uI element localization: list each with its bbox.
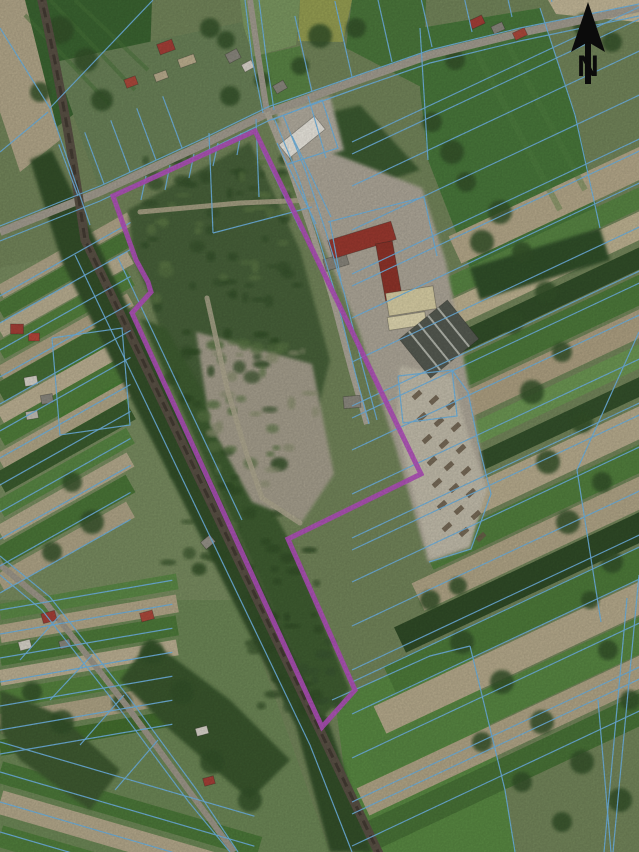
- aerial-map[interactable]: N: [0, 0, 639, 852]
- photo-grain-overlay: [0, 0, 639, 852]
- north-label: N: [577, 50, 599, 83]
- aerial-basemap: N: [0, 0, 639, 852]
